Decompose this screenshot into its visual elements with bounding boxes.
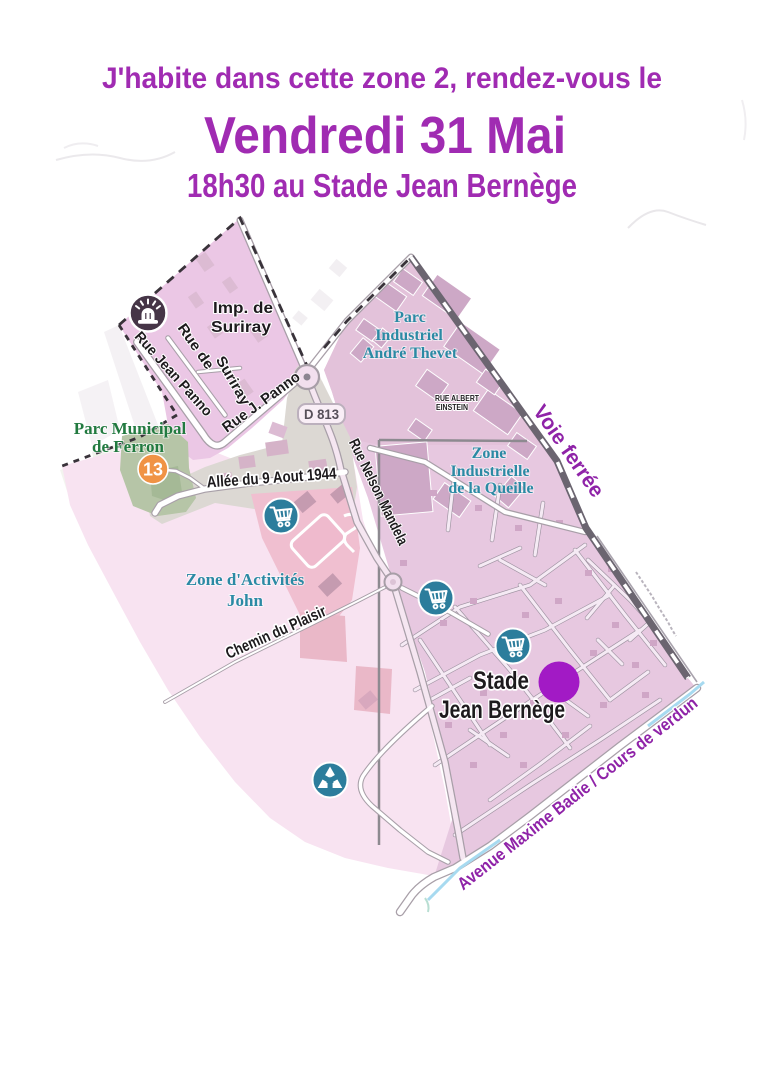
svg-text:Imp. de: Imp. de bbox=[213, 300, 273, 317]
svg-text:Vendredi 31 Mai: Vendredi 31 Mai bbox=[204, 107, 566, 165]
svg-text:EINSTEIN: EINSTEIN bbox=[436, 403, 468, 412]
svg-text:Stade: Stade bbox=[473, 667, 529, 695]
svg-text:Industrielle: Industrielle bbox=[450, 463, 529, 480]
svg-text:13: 13 bbox=[143, 460, 163, 480]
svg-text:Zone: Zone bbox=[472, 445, 507, 462]
svg-text:André Thevet: André Thevet bbox=[363, 345, 458, 362]
svg-text:Jean Bernège: Jean Bernège bbox=[439, 696, 565, 724]
svg-text:Parc Municipal: Parc Municipal bbox=[74, 419, 187, 438]
svg-text:RUE ALBERT: RUE ALBERT bbox=[435, 394, 479, 403]
svg-text:John: John bbox=[227, 591, 263, 610]
svg-text:de Ferron: de Ferron bbox=[92, 437, 164, 456]
svg-text:18h30 au Stade Jean Bernège: 18h30 au Stade Jean Bernège bbox=[187, 167, 577, 204]
svg-text:de la Queille: de la Queille bbox=[448, 480, 533, 497]
svg-text:Zone d'Activités: Zone d'Activités bbox=[186, 570, 305, 589]
svg-text:D 813: D 813 bbox=[304, 406, 339, 422]
svg-text:Suriray: Suriray bbox=[211, 319, 271, 336]
svg-text:Parc: Parc bbox=[394, 309, 426, 326]
svg-text:J'habite dans cette zone 2, re: J'habite dans cette zone 2, rendez-vous … bbox=[102, 62, 662, 95]
svg-text:Industriel: Industriel bbox=[375, 327, 443, 344]
